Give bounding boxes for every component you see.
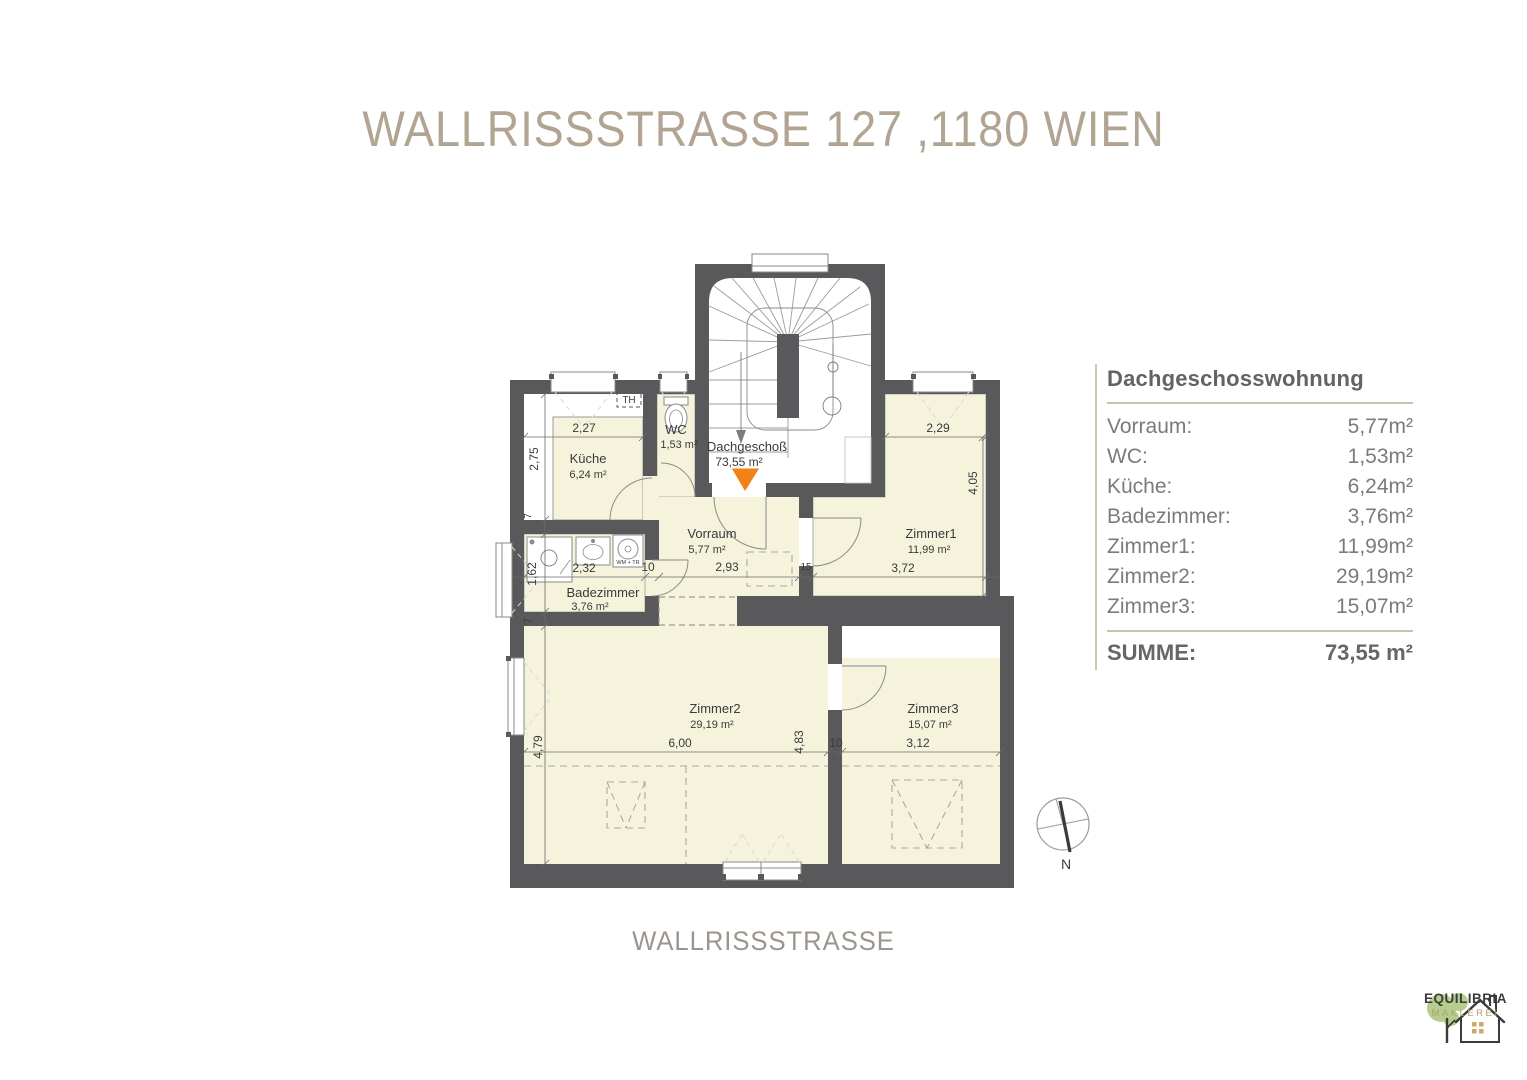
area-legend: Dachgeschosswohnung Vorraum: 5,77m² WC: … <box>1095 364 1413 670</box>
dim-zimmer2-w: 6,00 <box>668 736 692 750</box>
legend-label: Zimmer2: <box>1107 562 1196 592</box>
dim-wall-10a: 10 <box>641 560 655 574</box>
legend-row-kueche: Küche: 6,24m² <box>1107 472 1413 502</box>
zimmer3-low-strip <box>842 626 1000 658</box>
legend-row-zimmer1: Zimmer1: 11,99m² <box>1107 532 1413 562</box>
compass-north-label: N <box>1061 856 1071 872</box>
badezimmer-area: 3,76 m² <box>571 601 609 613</box>
dim-zimmer2-right: 4,83 <box>792 730 806 754</box>
logo-subtitle: MAKLEREI <box>1408 1008 1523 1019</box>
wm-tr-label: WM + TR <box>616 560 639 566</box>
wall-z2-z3-b <box>828 710 842 864</box>
legend-value: 5,77m² <box>1348 412 1413 442</box>
zimmer3-area: 15,07 m² <box>908 719 952 731</box>
zimmer3-label: Zimmer3 <box>907 701 958 716</box>
th-label: TH <box>622 395 635 406</box>
wc-area: 1,53 m² <box>660 439 698 451</box>
stair-wall-right <box>871 278 885 497</box>
dim-wall-7a: 7 <box>523 513 534 519</box>
dim-kueche-w: 2,27 <box>572 421 596 435</box>
vorraum-floor <box>659 497 799 596</box>
wc-label: WC <box>665 422 687 437</box>
zimmer2-area: 29,19 m² <box>690 719 734 731</box>
page: WALLRISSSTRASSE 127 ,1180 WIEN <box>0 0 1527 1080</box>
legend-sum-label: SUMME: <box>1107 636 1196 670</box>
legend-row-badezimmer: Badezimmer: 3,76m² <box>1107 502 1413 532</box>
legend-value: 3,76m² <box>1348 502 1413 532</box>
wall-z2-z3-a <box>828 626 842 664</box>
legend-label: Zimmer3: <box>1107 592 1196 622</box>
legend-value: 15,07m² <box>1336 592 1413 622</box>
legend-label: WC: <box>1107 442 1148 472</box>
legend-label: Badezimmer: <box>1107 502 1231 532</box>
wall-bad-right-a <box>645 534 659 560</box>
legend-value: 11,99m² <box>1338 532 1413 562</box>
stair-newel <box>777 334 799 418</box>
dim-wall-10b: 10 <box>829 736 843 750</box>
floor-label: Dachgeschoß <box>707 439 787 454</box>
legend-value: 6,24m² <box>1348 472 1413 502</box>
legend-value: 29,19m² <box>1336 562 1413 592</box>
wall-vorraum-z1-a <box>799 483 813 518</box>
wall-band-mid <box>737 596 1014 626</box>
compass: N <box>1037 798 1089 872</box>
kueche-area: 6,24 m² <box>569 469 607 481</box>
legend-row-vorraum: Vorraum: 5,77m² <box>1107 412 1413 442</box>
stair-wall-bottom-l <box>695 483 712 497</box>
logo-name: EQUILIBRIA <box>1408 991 1523 1006</box>
legend-divider-top <box>1107 402 1413 404</box>
badezimmer-label: Badezimmer <box>567 585 641 600</box>
vorraum-area: 5,77 m² <box>688 544 726 556</box>
dim-bad-w: 2,32 <box>572 561 596 575</box>
dim-zimmer2-left: 4,79 <box>531 735 545 759</box>
dim-bad-h: 1,62 <box>525 562 539 586</box>
legend-label: Zimmer1: <box>1107 532 1196 562</box>
wall-right-a <box>986 380 1000 596</box>
legend-value: 1,53m² <box>1348 442 1413 472</box>
vorraum-label: Vorraum <box>687 526 736 541</box>
legend-row-zimmer2: Zimmer2: 29,19m² <box>1107 562 1413 592</box>
kueche-label: Küche <box>570 451 607 466</box>
stair-wall-left <box>695 278 709 497</box>
legend-divider-bottom <box>1107 630 1413 632</box>
legend-row-wc: WC: 1,53m² <box>1107 442 1413 472</box>
dim-zimmer3-w: 3,12 <box>906 736 930 750</box>
street-label: WALLRISSSTRASSE <box>38 926 1489 957</box>
dim-zimmer1-right: 4,05 <box>966 471 980 495</box>
passage-floor <box>659 596 737 626</box>
wall-right-b <box>1000 596 1014 888</box>
dim-wall-15: 15 <box>800 562 812 573</box>
wall-bad-right-b <box>645 596 659 612</box>
entrance-doorway <box>712 483 766 497</box>
legend-label: Küche: <box>1107 472 1172 502</box>
wall-left <box>510 380 524 888</box>
zimmer3-floor <box>842 658 1000 864</box>
compass-needle <box>1060 801 1070 852</box>
legend-label: Vorraum: <box>1107 412 1192 442</box>
legend-row-zimmer3: Zimmer3: 15,07m² <box>1107 592 1413 622</box>
floor-area-label: 73,55 m² <box>715 455 762 469</box>
legend-sum-row: SUMME: 73,55 m² <box>1107 636 1413 670</box>
dim-kueche-h: 2,75 <box>527 447 541 471</box>
dim-vorraum-w: 2,93 <box>715 560 739 574</box>
broker-logo: EQUILIBRIA MAKLEREI <box>1408 990 1523 1019</box>
wall-kueche-bad <box>510 520 659 534</box>
zimmer1-area: 11,99 m² <box>908 544 951 556</box>
zimmer1-label: Zimmer1 <box>905 526 956 541</box>
stair-top-window <box>752 254 828 272</box>
legend-sum-value: 73,55 m² <box>1325 636 1413 670</box>
dim-zimmer1-bottom: 3,72 <box>891 561 915 575</box>
legend-title: Dachgeschosswohnung <box>1107 364 1413 402</box>
stair-wall-bottom-r <box>766 483 885 497</box>
dim-zimmer1-top: 2,29 <box>926 421 950 435</box>
zimmer2-label: Zimmer2 <box>689 701 740 716</box>
dim-wall-7b: 7 <box>523 618 534 624</box>
